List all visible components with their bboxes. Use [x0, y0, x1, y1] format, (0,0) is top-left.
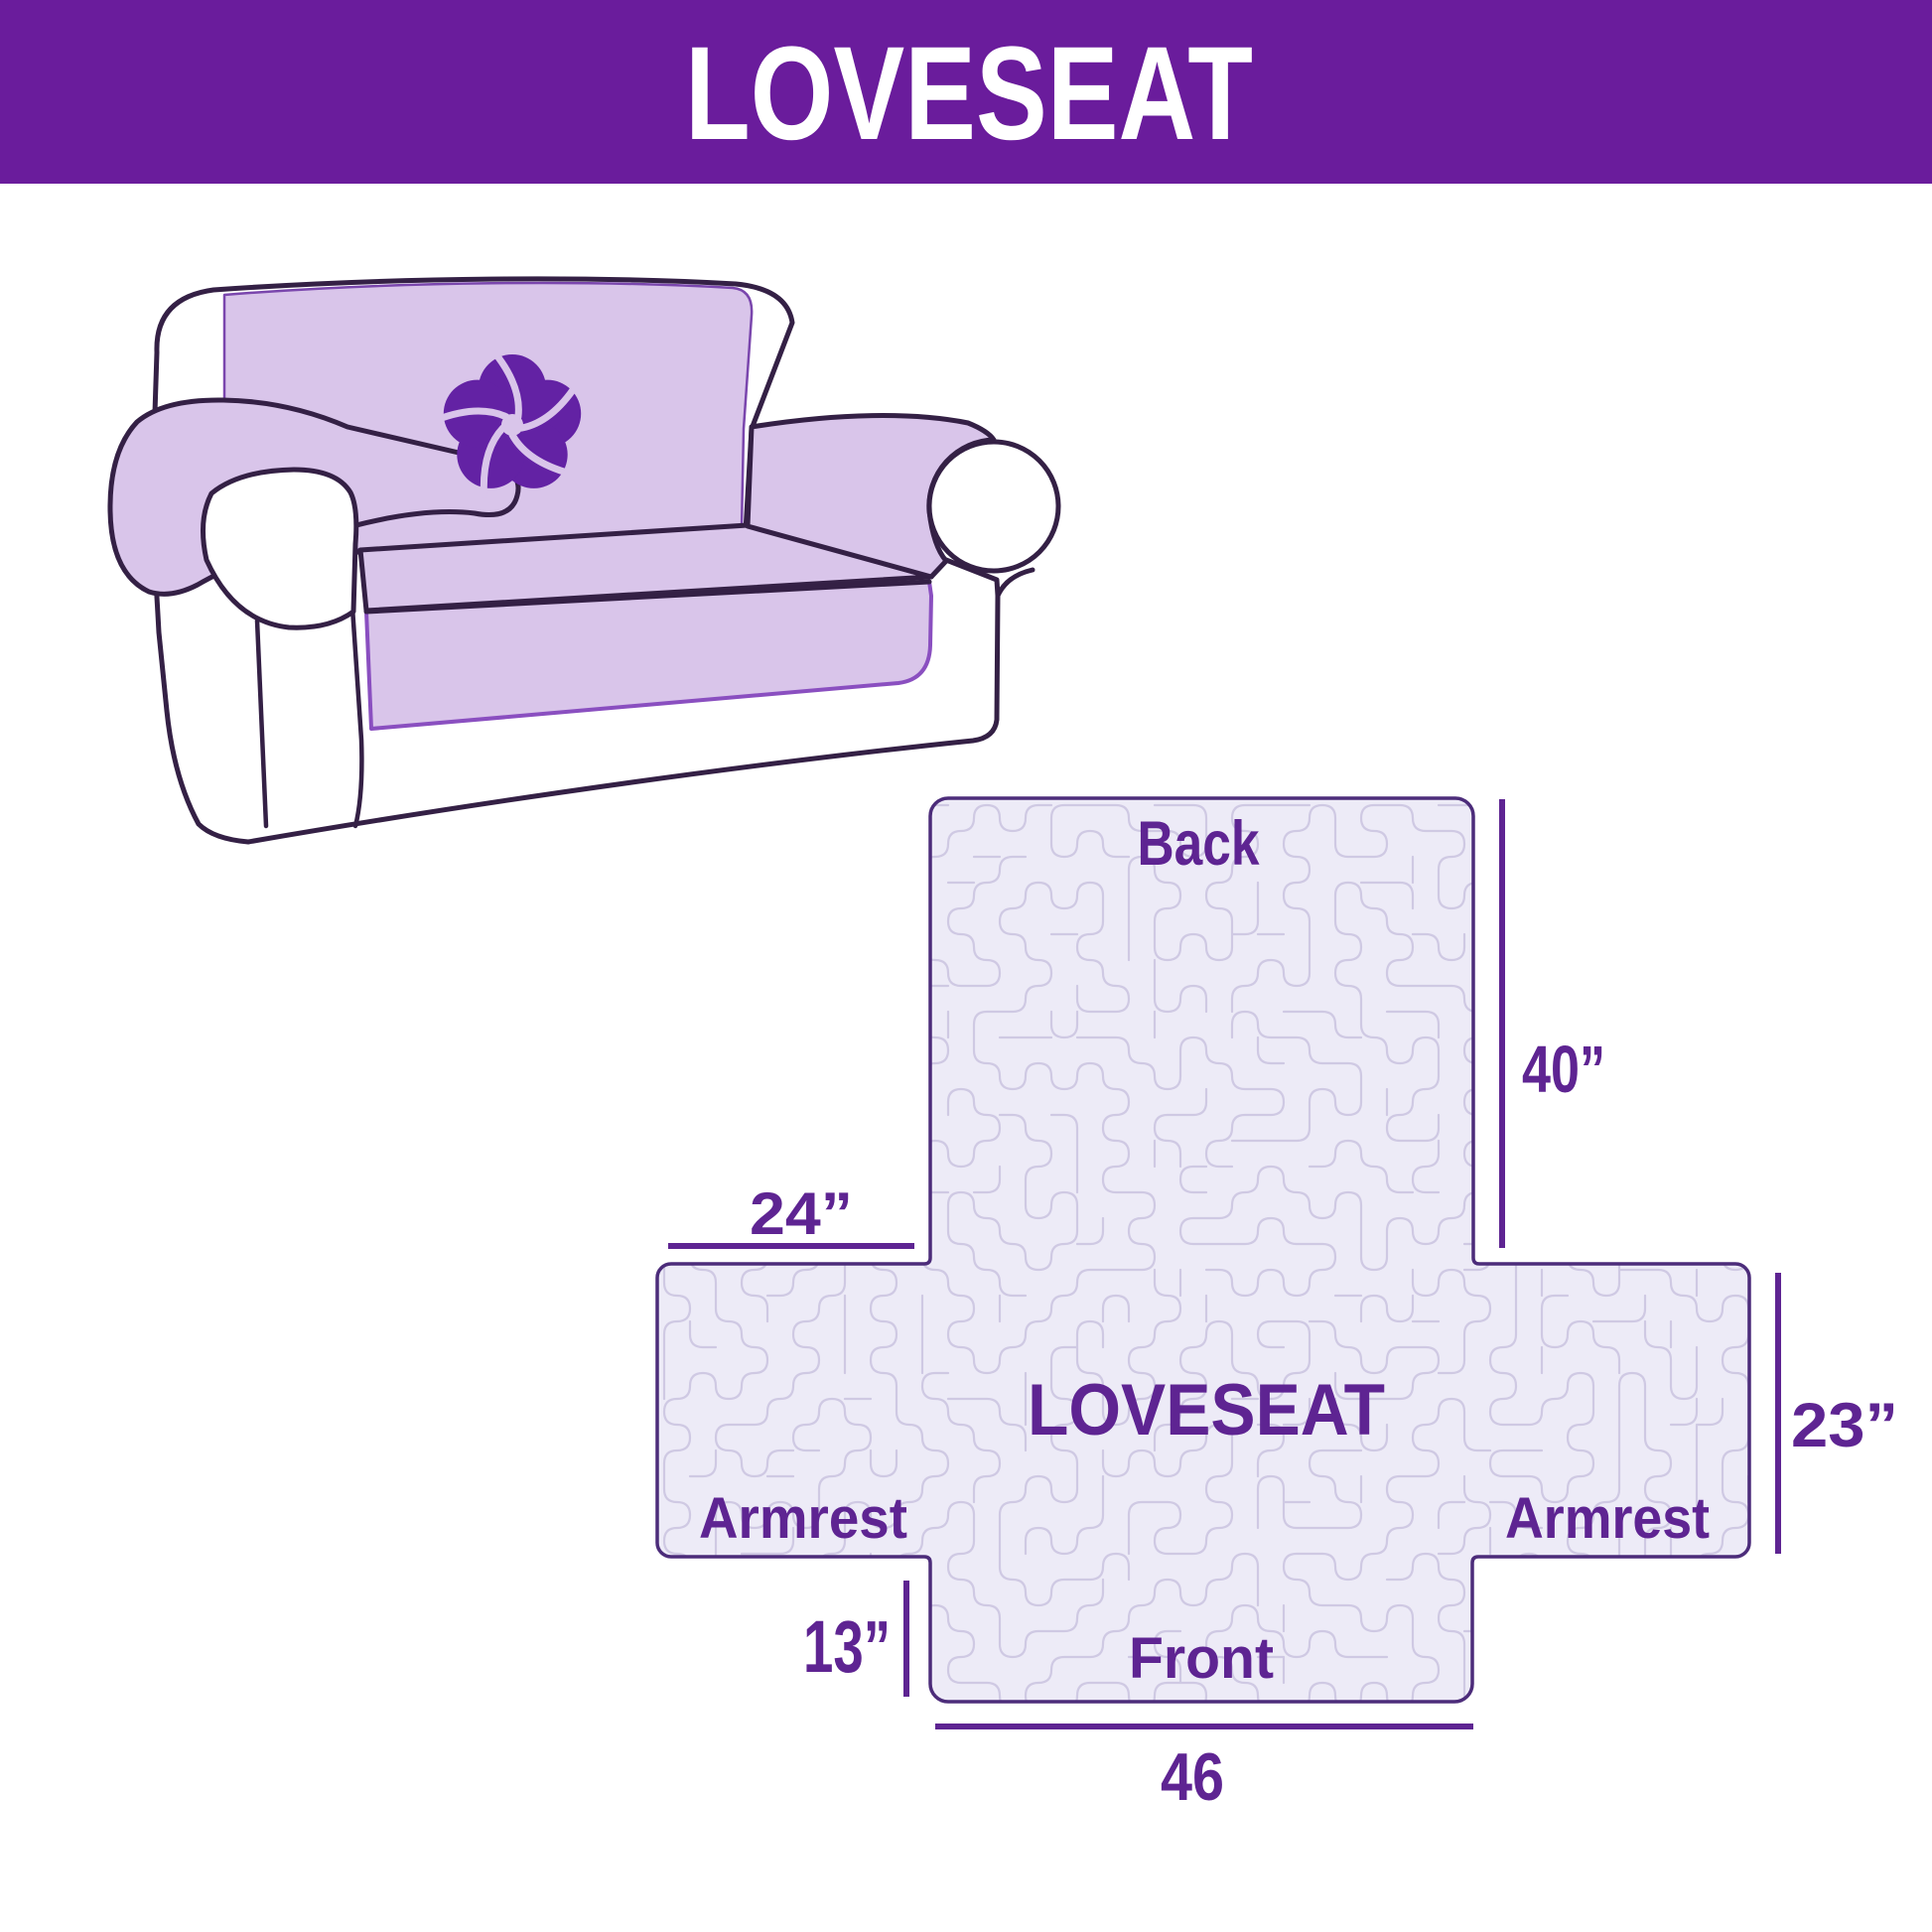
- svg-text:23”: 23”: [1791, 1391, 1898, 1460]
- svg-text:Armrest: Armrest: [1505, 1486, 1710, 1551]
- svg-text:Front: Front: [1129, 1626, 1274, 1691]
- svg-text:Back: Back: [1138, 809, 1261, 879]
- svg-text:LOVESEAT: LOVESEAT: [685, 20, 1253, 168]
- svg-text:13”: 13”: [803, 1605, 891, 1688]
- svg-text:40”: 40”: [1522, 1033, 1605, 1107]
- svg-text:Armrest: Armrest: [699, 1486, 907, 1551]
- svg-text:24”: 24”: [750, 1180, 853, 1247]
- svg-text:LOVESEAT: LOVESEAT: [1028, 1370, 1385, 1450]
- svg-text:46: 46: [1161, 1739, 1224, 1815]
